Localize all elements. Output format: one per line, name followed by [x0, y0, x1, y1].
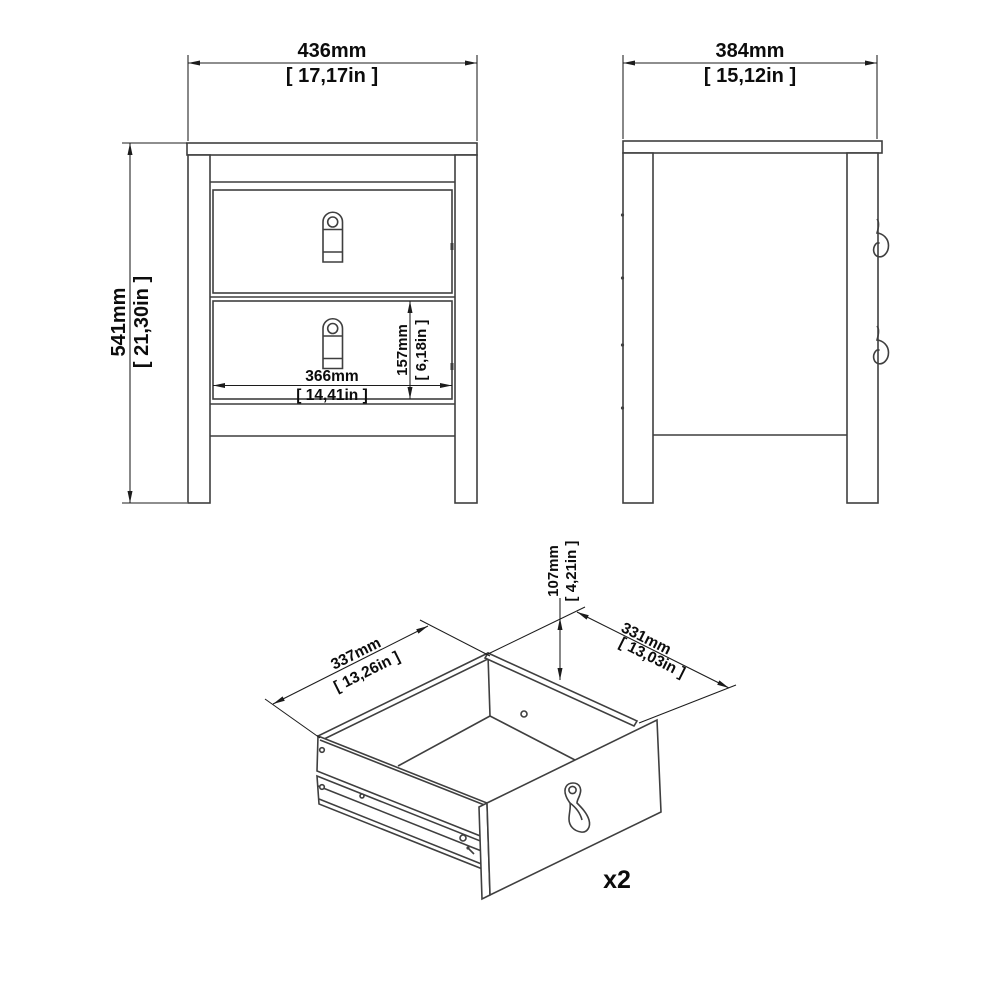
- back-fitting-mark: [621, 343, 624, 346]
- side-depth-dimension: 384mm [ 15,12in ]: [623, 40, 877, 139]
- drawer-iso-height-in: [ 4,21in ]: [563, 541, 580, 602]
- side-view-cabinet: [621, 141, 889, 503]
- front-width-dimension: 436mm [ 17,17in ]: [188, 40, 477, 141]
- cam-hole: [320, 748, 325, 753]
- inner-corner-edge: [488, 655, 490, 716]
- bottom-left-edge: [398, 716, 490, 766]
- front-height-dimension: 541mm [ 21,30in ]: [108, 143, 187, 503]
- back-fitting-mark: [621, 213, 624, 216]
- technical-drawing: 436mm [ 17,17in ] 541mm [ 21,30in ] 366m…: [0, 0, 1000, 1000]
- drawer-box: [317, 653, 661, 899]
- back-fitting-mark: [621, 406, 624, 409]
- tabletop: [187, 143, 477, 155]
- drawer-height-in: [ 6,18in ]: [413, 320, 430, 381]
- cam-hole: [320, 785, 325, 790]
- front-leg: [847, 153, 878, 503]
- drawer-pull-icon: [323, 319, 343, 369]
- side-view: 384mm [ 15,12in ]: [621, 40, 889, 503]
- side-depth-in: [ 15,12in ]: [704, 65, 796, 87]
- quantity-label: x2: [603, 866, 631, 894]
- front-view-cabinet: [187, 143, 477, 503]
- drawing-sheet: 436mm [ 17,17in ] 541mm [ 21,30in ] 366m…: [0, 0, 1000, 1000]
- drawer-iso-height-dimension: 107mm [ 4,21in ]: [545, 541, 580, 680]
- drawer-edge-mark: [451, 243, 454, 250]
- front-width-mm: 436mm: [298, 40, 367, 62]
- bottom-front-edge: [490, 716, 575, 760]
- front-width-in: [ 17,17in ]: [286, 65, 378, 87]
- screw-hole: [521, 711, 527, 717]
- tabletop-side: [623, 141, 882, 153]
- drawer-width-in: [ 14,41in ]: [296, 387, 368, 404]
- rim-edge-back: [485, 653, 637, 726]
- right-leg: [455, 155, 477, 503]
- rail-hole: [460, 835, 466, 841]
- drawer-view: 337mm [ 13,26in ] 331mm [ 13,03in ] 107m…: [265, 541, 736, 899]
- front-height-mm: 541mm: [108, 288, 130, 357]
- side-depth-mm: 384mm: [716, 40, 785, 62]
- drawer-iso-height-mm: 107mm: [545, 545, 562, 597]
- front-height-in: [ 21,30in ]: [131, 276, 153, 368]
- drawer-width-mm: 366mm: [305, 368, 358, 385]
- drawer-pull-icon: [323, 212, 343, 262]
- back-leg: [623, 153, 653, 503]
- rail-hole: [360, 794, 364, 798]
- drawer-edge-mark: [451, 363, 454, 370]
- drawer-iso-depth-dimension: 331mm [ 13,03in ]: [488, 607, 736, 723]
- drawer-iso-width-dimension: 337mm [ 13,26in ]: [265, 620, 490, 738]
- back-fitting-mark: [621, 276, 624, 279]
- front-view: 436mm [ 17,17in ] 541mm [ 21,30in ] 366m…: [108, 40, 477, 503]
- drawer-height-mm: 157mm: [394, 324, 411, 376]
- left-leg: [188, 155, 210, 503]
